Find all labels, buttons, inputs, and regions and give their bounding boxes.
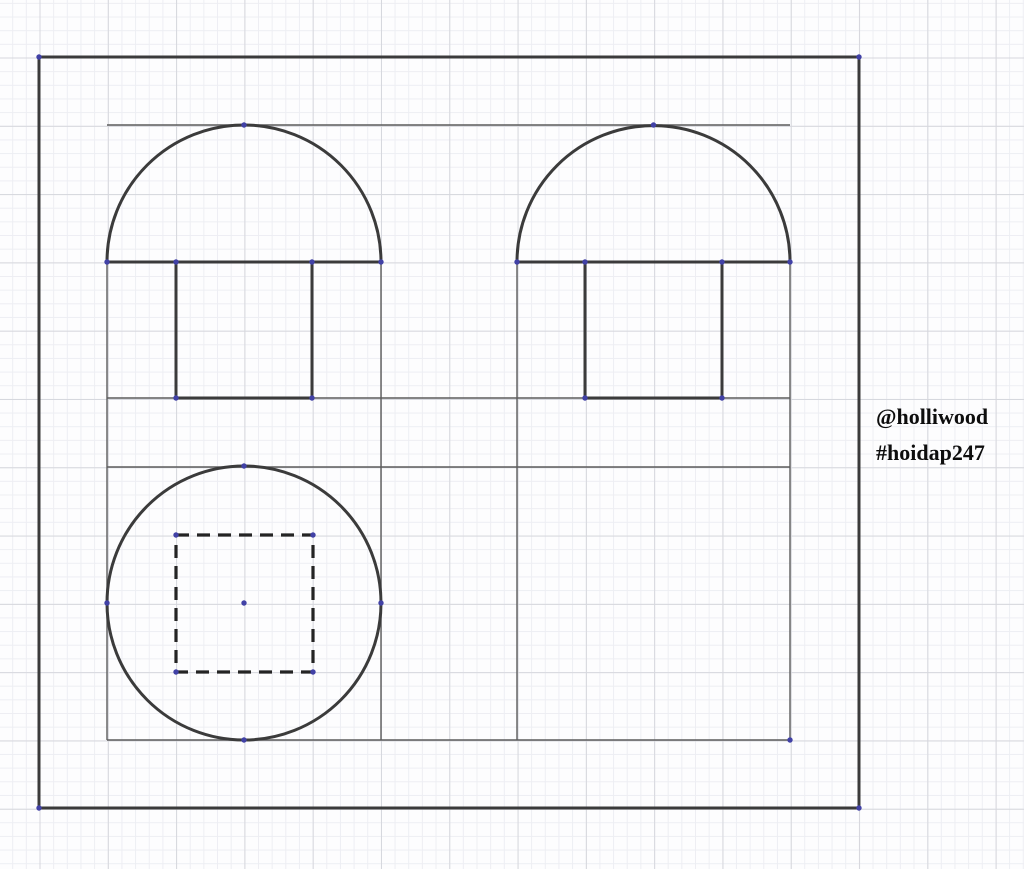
vertex-point[interactable] [173,259,178,264]
vertex-point[interactable] [241,463,246,468]
vertex-point[interactable] [582,395,587,400]
vertex-point[interactable] [173,669,178,674]
vertex-point[interactable] [378,259,383,264]
vertex-point[interactable] [719,395,724,400]
vertex-point[interactable] [787,259,792,264]
vertex-point[interactable] [582,259,587,264]
vertex-point[interactable] [104,259,109,264]
vertex-point[interactable] [719,259,724,264]
vertex-point[interactable] [787,737,792,742]
watermark: @holliwood #hoidap247 [876,399,988,471]
vertex-point[interactable] [856,54,861,59]
vertex-point[interactable] [378,600,383,605]
semicircle-arc[interactable] [107,125,381,262]
vertex-point[interactable] [309,395,314,400]
vertex-point[interactable] [514,259,519,264]
vertex-point[interactable] [241,600,246,605]
drawing-canvas[interactable]: @holliwood #hoidap247 [0,0,1024,869]
vertex-point[interactable] [173,395,178,400]
vertex-point[interactable] [856,805,861,810]
vertex-point[interactable] [241,122,246,127]
vertex-point[interactable] [173,532,178,537]
vertex-point[interactable] [651,122,656,127]
watermark-line1: @holliwood [876,399,988,435]
vertex-point[interactable] [104,600,109,605]
vertex-point[interactable] [36,54,41,59]
vertex-point[interactable] [310,669,315,674]
vertex-point[interactable] [310,532,315,537]
vertex-point[interactable] [309,259,314,264]
semicircle-arc[interactable] [517,126,790,262]
vertex-point[interactable] [36,805,41,810]
geometry-svg [0,0,1024,869]
watermark-line2: #hoidap247 [876,435,988,471]
vertex-point[interactable] [241,737,246,742]
